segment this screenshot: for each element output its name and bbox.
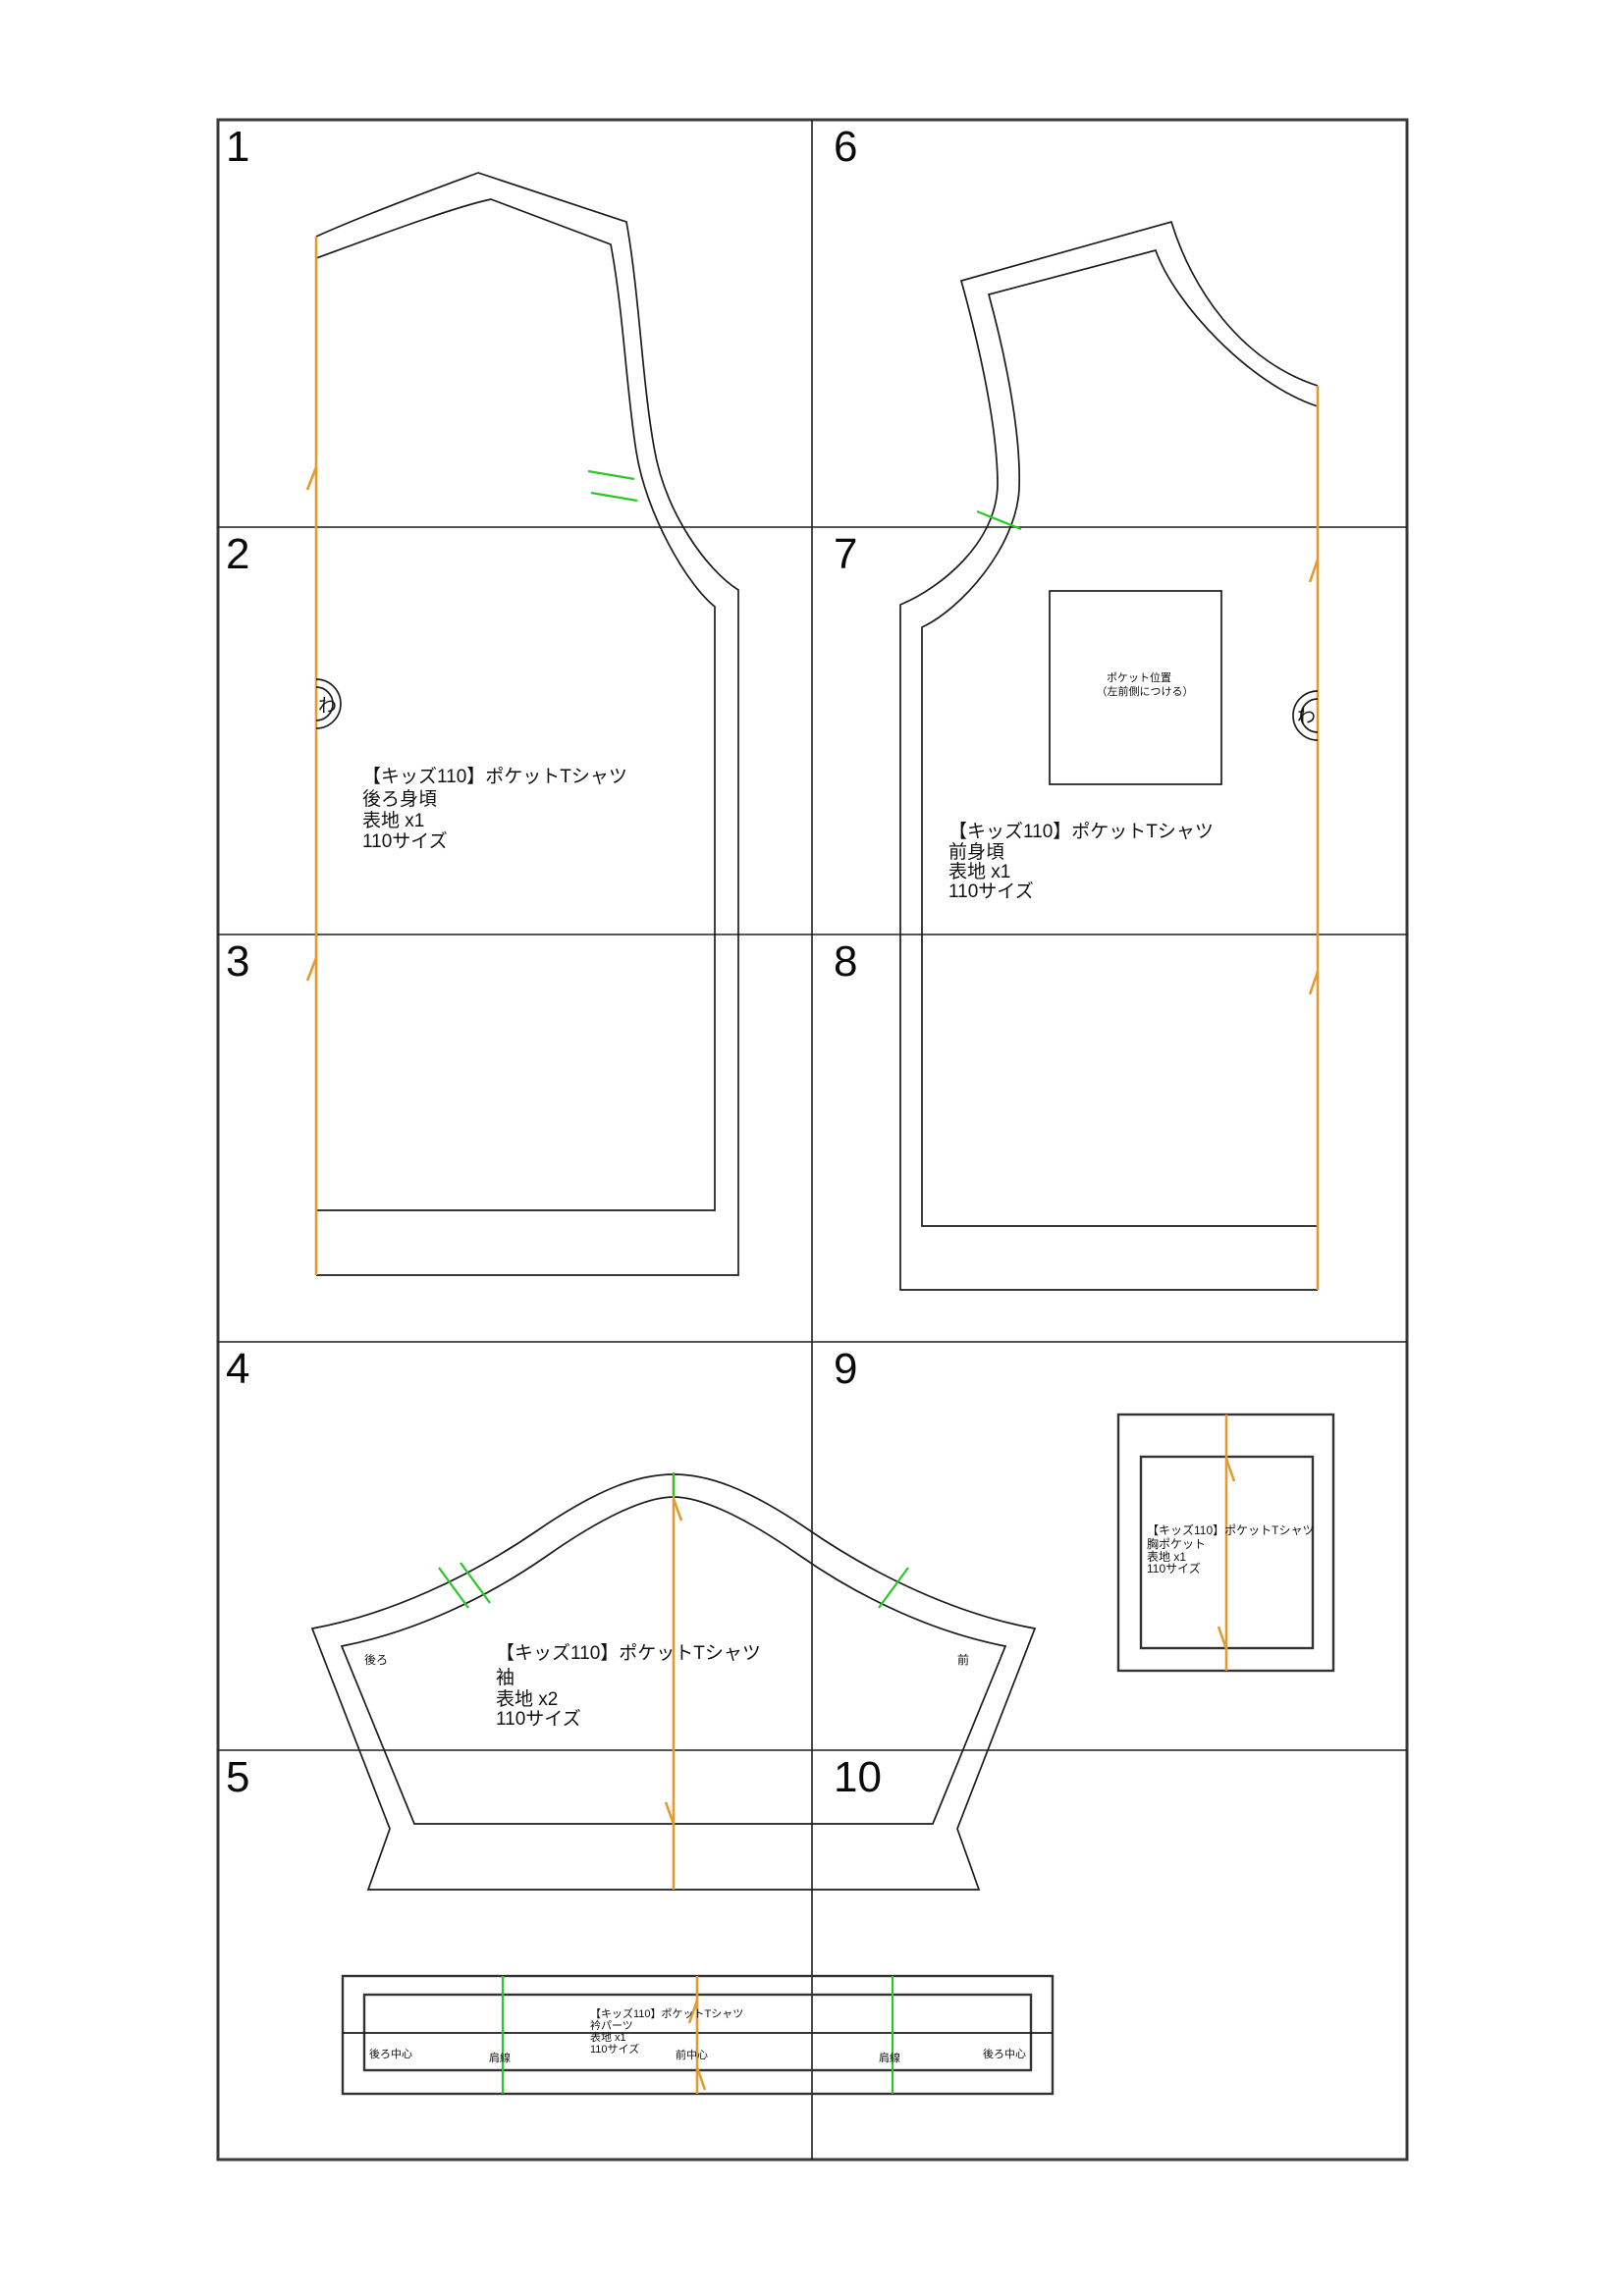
back-label-line-3: 表地 x1 <box>362 810 424 831</box>
back-label-line-1: 【キッズ110】ポケットTシャツ <box>362 766 627 787</box>
collar-label-line-2: 衿パーツ <box>590 2018 633 2032</box>
front-fold-grain-line <box>1310 386 1318 1290</box>
pocket-position-line-1: ポケット位置 <box>1107 670 1171 684</box>
sleeve-label-line-1: 【キッズ110】ポケットTシャツ <box>496 1642 761 1664</box>
sleeve-label-line-2: 袖 <box>496 1667 514 1688</box>
chest-pocket-piece: 【キッズ110】ポケットTシャツ 胸ポケット 表地 x1 110サイズ <box>1118 1415 1333 1671</box>
back-stitch-outline <box>316 199 715 1210</box>
tile-number-8: 8 <box>834 937 857 986</box>
back-piece-label: 【キッズ110】ポケットTシャツ 後ろ身頃 表地 x1 110サイズ <box>362 766 627 852</box>
tile-number-7: 7 <box>834 530 857 578</box>
pocket-label-line-1: 【キッズ110】ポケットTシャツ <box>1147 1522 1314 1537</box>
collar-piece: 後ろ中心 肩線 前中心 肩線 後ろ中心 【キッズ110】ポケットTシャツ 衿パー… <box>343 1976 1053 2094</box>
back-label-line-4: 110サイズ <box>362 830 448 852</box>
sewing-pattern-sheet: 1 2 3 4 5 6 7 8 9 10 わ 【キッズ110】ポケットTシャツ … <box>0 0 1624 2296</box>
front-fold-mark-label: わ <box>1297 707 1316 727</box>
collar-back-center-left-label: 後ろ中心 <box>369 2047 412 2060</box>
tile-number-6: 6 <box>834 123 857 171</box>
front-label-line-2: 前身頃 <box>948 841 1004 863</box>
tile-number-1: 1 <box>226 123 249 171</box>
sleeve-back-side-label: 後ろ <box>364 1653 388 1667</box>
sleeve-piece: 後ろ 前 【キッズ110】ポケットTシャツ 袖 表地 x2 110サイズ <box>312 1472 1035 1890</box>
pocket-label-line-4: 110サイズ <box>1147 1561 1201 1575</box>
back-fold-mark-label: わ <box>318 696 337 717</box>
pocket-label-line-2: 胸ポケット <box>1147 1536 1206 1551</box>
collar-back-center-right-label: 後ろ中心 <box>983 2047 1026 2060</box>
front-label-line-3: 表地 x1 <box>948 861 1010 882</box>
sleeve-piece-label: 【キッズ110】ポケットTシャツ 袖 表地 x2 110サイズ <box>496 1642 761 1730</box>
collar-front-center-label: 前中心 <box>676 2048 708 2061</box>
collar-shoulder-right-label: 肩線 <box>879 2051 900 2064</box>
back-label-line-2: 後ろ身頃 <box>362 788 437 810</box>
front-label-line-1: 【キッズ110】ポケットTシャツ <box>948 821 1214 842</box>
tile-number-10: 10 <box>834 1753 882 1801</box>
front-cut-outline <box>900 222 1318 1290</box>
collar-label-line-3: 表地 x1 <box>590 2030 626 2044</box>
sleeve-grain-line <box>666 1474 681 1890</box>
pattern-canvas: 1 2 3 4 5 6 7 8 9 10 わ 【キッズ110】ポケットTシャツ … <box>0 0 1624 2296</box>
front-bodice-piece: ポケット位置 （左前側につける） わ 【キッズ110】ポケットTシャツ 前身頃 … <box>900 222 1318 1290</box>
pocket-position-line-2: （左前側につける） <box>1097 684 1194 698</box>
tile-number-3: 3 <box>226 937 249 986</box>
sleeve-label-line-3: 表地 x2 <box>496 1688 558 1710</box>
back-cut-outline <box>316 173 738 1275</box>
back-fold-grain-line <box>307 237 316 1275</box>
collar-shoulder-left-label: 肩線 <box>489 2051 511 2064</box>
pocket-position-label: ポケット位置 （左前側につける） <box>1097 670 1194 698</box>
collar-label-line-4: 110サイズ <box>590 2042 639 2056</box>
print-tile-grid: 1 2 3 4 5 6 7 8 9 10 <box>218 120 1407 2160</box>
front-stitch-outline <box>922 250 1318 1226</box>
pocket-piece-label: 【キッズ110】ポケットTシャツ 胸ポケット 表地 x1 110サイズ <box>1147 1522 1314 1575</box>
back-armhole-notch-marks <box>588 471 637 501</box>
pocket-grain-line <box>1218 1415 1234 1671</box>
collar-label-line-1: 【キッズ110】ポケットTシャツ <box>590 2006 743 2020</box>
front-piece-label: 【キッズ110】ポケットTシャツ 前身頃 表地 x1 110サイズ <box>948 821 1214 902</box>
front-label-line-4: 110サイズ <box>948 881 1034 902</box>
tile-number-5: 5 <box>226 1753 249 1801</box>
collar-piece-label: 【キッズ110】ポケットTシャツ 衿パーツ 表地 x1 110サイズ <box>590 2006 743 2056</box>
tile-number-4: 4 <box>226 1345 249 1393</box>
tile-number-2: 2 <box>226 530 249 578</box>
back-bodice-piece: わ 【キッズ110】ポケットTシャツ 後ろ身頃 表地 x1 110サイズ <box>307 173 738 1275</box>
sleeve-front-side-label: 前 <box>957 1652 969 1667</box>
tile-number-9: 9 <box>834 1345 857 1393</box>
sleeve-label-line-4: 110サイズ <box>496 1708 581 1730</box>
